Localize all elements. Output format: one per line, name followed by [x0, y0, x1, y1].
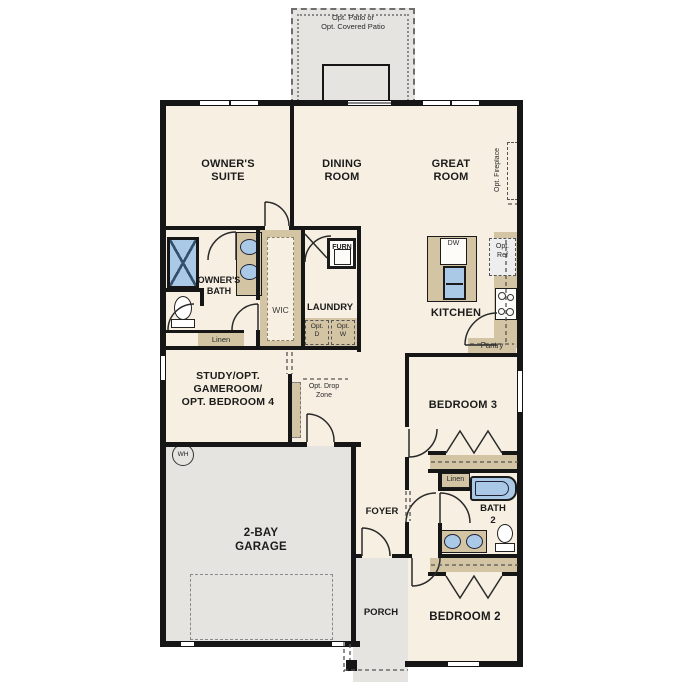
- door-arc: [362, 528, 390, 556]
- room-label-owners-bath: OWNER'S BATH: [178, 275, 260, 297]
- room-label-wic: WIC: [258, 305, 303, 315]
- door-arc: [307, 414, 334, 442]
- bifold-doors: [446, 431, 502, 453]
- door-arc: [409, 429, 437, 457]
- label-dishwasher: DW: [440, 240, 467, 249]
- label-opt-fireplace: Opt. Fireplace: [494, 138, 506, 202]
- room-label-foyer: FOYER: [357, 506, 407, 518]
- room-label-kitchen: KITCHEN: [424, 307, 488, 320]
- door-arc: [232, 304, 258, 330]
- label-pantry: Pantry: [468, 341, 516, 351]
- room-label-owners-suite: OWNER'S SUITE: [163, 158, 293, 185]
- door-swings-layer: [0, 0, 687, 687]
- label-linen-hall: Linen: [441, 475, 470, 484]
- room-label-bedroom3: BEDROOM 3: [410, 399, 516, 412]
- room-label-porch: PORCH: [355, 607, 407, 619]
- door-arc: [440, 493, 470, 523]
- label-opt-fridge: Opt. Ref: [489, 243, 516, 260]
- room-label-dining: DINING ROOM: [294, 158, 390, 185]
- door-arc: [168, 304, 194, 330]
- label-drop-zone: Opt. Drop Zone: [298, 383, 350, 400]
- room-label-garage: 2-BAY GARAGE: [208, 526, 314, 554]
- label-linen-owners: Linen: [198, 335, 244, 344]
- label-opt-washer: Opt. W: [331, 323, 355, 340]
- label-furnace: FURN: [326, 244, 358, 253]
- door-arc: [208, 232, 236, 260]
- room-label-study: STUDY/OPT. GAMEROOM/ OPT. BEDROOM 4: [165, 370, 291, 408]
- door-arc: [265, 202, 289, 226]
- bifold-doors: [446, 576, 502, 598]
- room-label-bedroom2: BEDROOM 2: [409, 610, 521, 624]
- porch-edge: [344, 642, 408, 672]
- door-arc: [412, 558, 440, 586]
- floor-plan: Opt. Patio or Opt. Covered Patio: [0, 0, 687, 687]
- room-label-bath2: BATH 2: [472, 503, 514, 526]
- room-label-great: GREAT ROOM: [398, 158, 504, 185]
- room-label-laundry: LAUNDRY: [302, 302, 358, 314]
- patio-label: Opt. Patio or Opt. Covered Patio: [293, 13, 413, 31]
- label-opt-dryer: Opt. D: [305, 323, 329, 340]
